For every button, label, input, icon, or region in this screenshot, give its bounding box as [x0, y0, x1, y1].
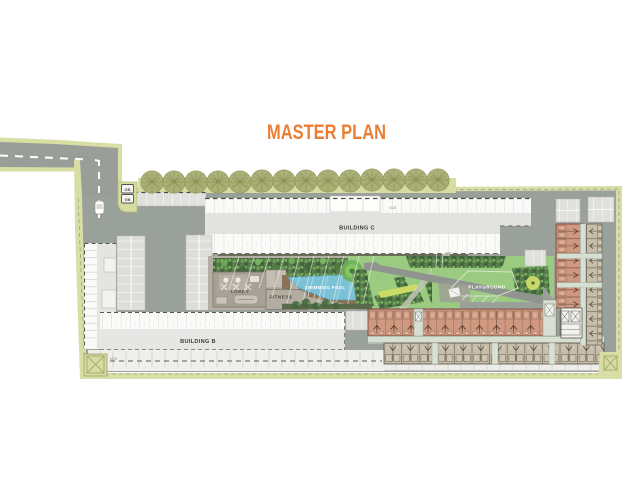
- svg-text:GB: GB: [125, 187, 131, 192]
- svg-text:GB: GB: [125, 197, 131, 202]
- svg-text:BUILDING B: BUILDING B: [180, 339, 216, 345]
- svg-text:MASTER PLAN: MASTER PLAN: [267, 120, 386, 144]
- svg-text:BUILDING C: BUILDING C: [339, 226, 375, 232]
- svg-text:SWIMMING POOL: SWIMMING POOL: [305, 285, 346, 290]
- svg-text:LOBBY: LOBBY: [231, 289, 250, 294]
- svg-text:MDB: MDB: [110, 357, 117, 361]
- svg-text:PLAYGROUND: PLAYGROUND: [468, 285, 505, 290]
- svg-text:MDB: MDB: [389, 206, 397, 210]
